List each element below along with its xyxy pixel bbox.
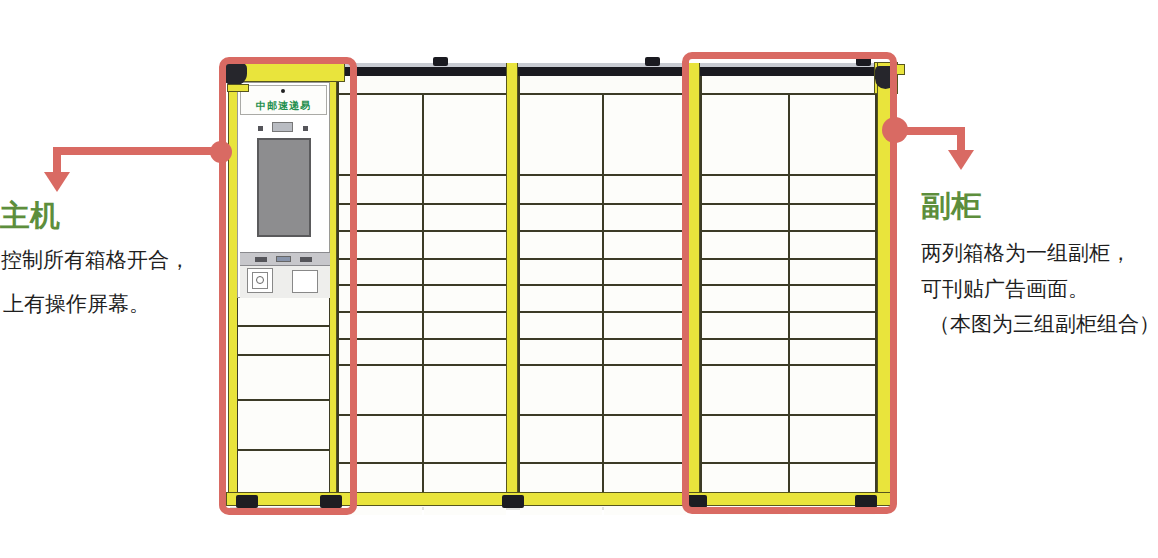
locker-cell [424,232,507,260]
locker-cell [604,340,686,366]
aux-cabinet-desc-line-1: 两列箱格为一组副柜， [921,239,1131,267]
locker-cell [604,464,686,515]
product-diagram-canvas: 中邮速递易 [0,0,1158,558]
locker-cell [424,260,507,286]
locker-cell [604,366,686,416]
locker-cell [604,313,686,340]
rail-bracket-icon [645,57,660,66]
arrow-segment [53,147,221,155]
frame-post [506,63,518,505]
locker-cell [424,176,507,205]
main-unit-desc-line-2: 上有操作屏幕。 [3,290,150,318]
connector-dot [210,141,232,163]
arrow-head-icon [44,172,70,192]
locker-cell [520,366,602,416]
locker-column [424,95,507,495]
arrow-segment [957,127,965,150]
aux-cabinet-desc-line-3: （本图为三组副柜组合） [929,310,1158,338]
locker-column [520,95,602,495]
top-band [339,76,506,95]
main-unit-desc-line-1: 控制所有箱格开合， [1,246,190,274]
locker-cell [604,416,686,464]
locker-cell [424,313,507,340]
locker-cell [604,176,686,205]
locker-cell [604,286,686,313]
locker-group-1 [337,76,508,493]
locker-cell [520,205,602,232]
locker-cell [520,340,602,366]
locker-cell [520,464,602,515]
arrow-segment [53,147,61,172]
locker-cell [520,232,602,260]
locker-cell [520,95,602,176]
locker-cell [424,366,507,416]
locker-cell [604,205,686,232]
aux-cabinet-highlight-box [682,52,897,514]
locker-cell [424,416,507,464]
locker-group-2 [518,76,688,493]
connector-dot [882,117,908,143]
main-unit-heading: 主机 [0,196,60,237]
top-band [520,76,686,95]
locker-cell [424,340,507,366]
base-foot [502,495,524,508]
locker-cell [604,260,686,286]
locker-cell [604,232,686,260]
rail-bracket-icon [433,57,448,66]
aux-cabinet-desc-line-2: 可刊贴广告画面。 [921,275,1089,303]
locker-cell [520,313,602,340]
locker-cell [520,416,602,464]
locker-cell [424,95,507,176]
locker-cell [520,286,602,313]
locker-cell [424,286,507,313]
locker-cell [604,95,686,176]
locker-cell [424,205,507,232]
locker-column [604,95,686,495]
locker-cell [520,176,602,205]
arrow-head-icon [948,150,974,170]
aux-cabinet-heading: 副柜 [921,186,981,227]
locker-cell [520,260,602,286]
main-unit-highlight-box [219,57,357,515]
locker-cell [424,464,507,515]
